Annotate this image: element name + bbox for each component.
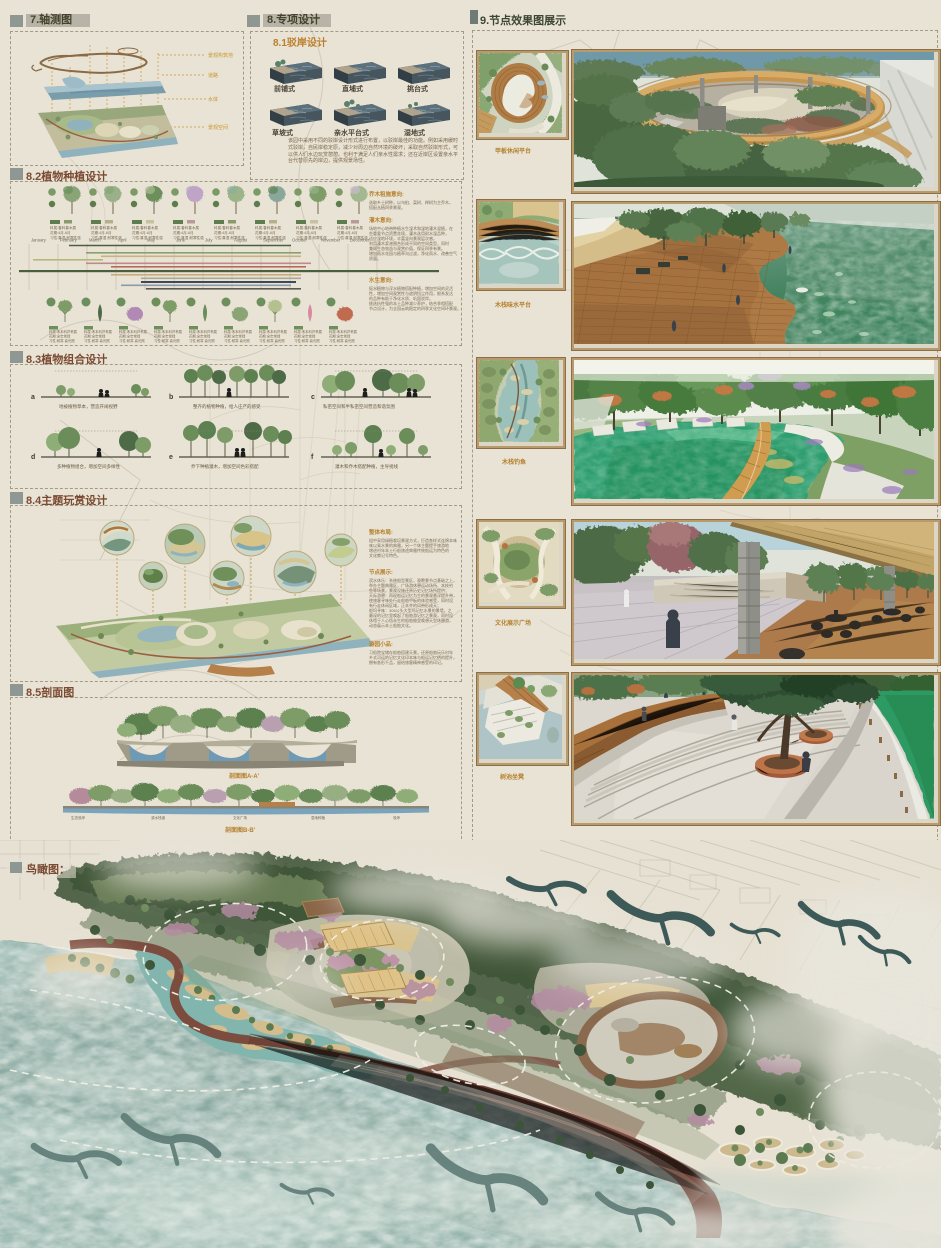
svg-text:花期:4月-6月: 花期:4月-6月 xyxy=(50,230,71,235)
svg-text:August: August xyxy=(234,238,248,243)
svg-text:科属:禾本科芦苇属: 科属:禾本科芦苇属 xyxy=(49,329,78,334)
svg-text:January: January xyxy=(31,238,47,243)
svg-text:习性:耐寒 喜光照: 习性:耐寒 喜光照 xyxy=(224,338,250,343)
svg-text:c: c xyxy=(311,394,315,401)
svg-text:滨水栈道: 滨水栈道 xyxy=(151,815,165,820)
svg-text:花期:4月-6月: 花期:4月-6月 xyxy=(255,230,276,235)
svg-text:文化广场: 文化广场 xyxy=(233,815,247,820)
svg-text:地被植物草本，营造开阔视野: 地被植物草本，营造开阔视野 xyxy=(59,403,118,410)
svg-text:生态驳岸: 生态驳岸 xyxy=(71,815,85,820)
svg-text:科属:禾本科芦苇属: 科属:禾本科芦苇属 xyxy=(294,329,323,334)
svg-text:科属:禾本科芦苇属: 科属:禾本科芦苇属 xyxy=(154,329,183,334)
svg-text:February: February xyxy=(60,238,78,243)
svg-text:草坡式: 草坡式 xyxy=(272,128,293,137)
svg-text:灌木意向:: 灌木意向: xyxy=(369,216,393,224)
svg-text:乔下种植灌木，增加空间色彩搭配: 乔下种植灌木，增加空间色彩搭配 xyxy=(191,463,259,470)
svg-text:景观空间: 景观空间 xyxy=(208,124,228,131)
svg-text:道路: 道路 xyxy=(208,72,218,79)
svg-text:June: June xyxy=(176,238,186,243)
svg-text:e: e xyxy=(169,454,173,461)
svg-text:科属:春科春木属: 科属:春科春木属 xyxy=(173,225,200,230)
svg-text:乔木租施意向:: 乔木租施意向: xyxy=(368,190,404,198)
svg-text:习性:耐寒 喜光照: 习性:耐寒 喜光照 xyxy=(119,338,145,343)
svg-text:搭配丛植四季景观。: 搭配丛植四季景观。 xyxy=(369,204,405,210)
svg-text:习性:耐寒 喜光照: 习性:耐寒 喜光照 xyxy=(294,338,320,343)
svg-text:October: October xyxy=(292,238,308,243)
svg-text:亲水平台式: 亲水平台式 xyxy=(334,128,369,137)
svg-text:驳岸: 驳岸 xyxy=(393,815,401,820)
svg-text:科属:春科春木属: 科属:春科春木属 xyxy=(296,225,323,230)
svg-text:科属:禾本科芦苇属: 科属:禾本科芦苇属 xyxy=(189,329,218,334)
svg-text:April: April xyxy=(118,238,126,243)
svg-text:习性:耐寒 喜光照: 习性:耐寒 喜光照 xyxy=(189,338,215,343)
svg-text:私密空间和半私密空间营造和谐氛围: 私密空间和半私密空间营造和谐氛围 xyxy=(323,403,395,410)
svg-text:花期:全年常绿: 花期:全年常绿 xyxy=(84,334,106,339)
svg-text:f: f xyxy=(311,454,314,461)
svg-text:a: a xyxy=(31,394,35,401)
svg-text:习性:耐寒 喜光照: 习性:耐寒 喜光照 xyxy=(329,338,355,343)
svg-text:动态展示本土船舶文化。: 动态展示本土船舶文化。 xyxy=(369,622,413,628)
svg-text:科属:春科春木属: 科属:春科春木属 xyxy=(214,225,241,230)
svg-text:d: d xyxy=(31,454,35,461)
svg-text:景观构筑地: 景观构筑地 xyxy=(208,52,233,59)
svg-text:September: September xyxy=(263,238,284,243)
svg-text:拥有各形千品，留给旅客精神感受的印记。: 拥有各形千品，留给旅客精神感受的印记。 xyxy=(369,659,445,665)
svg-text:科属:春科春木属: 科属:春科春木属 xyxy=(50,225,77,230)
svg-text:湿地种植: 湿地种植 xyxy=(311,815,325,820)
svg-text:习性:耐寒 喜光照: 习性:耐寒 喜光照 xyxy=(259,338,285,343)
svg-text:March: March xyxy=(89,238,101,243)
svg-text:科属:禾本科芦苇属: 科属:禾本科芦苇属 xyxy=(259,329,288,334)
svg-text:花期:全年常绿: 花期:全年常绿 xyxy=(49,334,71,339)
svg-text:整齐的植物种植，给人庄严的感受: 整齐的植物种植，给人庄严的感受 xyxy=(193,403,261,410)
svg-text:b: b xyxy=(169,394,173,401)
svg-text:科属:禾本科芦苇属: 科属:禾本科芦苇属 xyxy=(119,329,148,334)
svg-text:科属:春科春木属: 科属:春科春木属 xyxy=(255,225,282,230)
svg-text:习性:耐寒 喜光照: 习性:耐寒 喜光照 xyxy=(154,338,180,343)
svg-text:挑台式: 挑台式 xyxy=(407,84,428,93)
svg-text:花期:全年常绿: 花期:全年常绿 xyxy=(329,334,351,339)
svg-text:July: July xyxy=(205,238,213,243)
svg-text:花期:4月-6月: 花期:4月-6月 xyxy=(91,230,112,235)
svg-text:科属:禾本科芦苇属: 科属:禾本科芦苇属 xyxy=(84,329,113,334)
svg-text:剖面图B-B': 剖面图B-B' xyxy=(225,826,256,834)
svg-text:节点设计，为全园云筑稳定的四季文化空间环景观。: 节点设计，为全园云筑稳定的四季文化空间环景观。 xyxy=(369,305,459,311)
svg-text:水体: 水体 xyxy=(208,96,218,103)
svg-text:整体布局:: 整体布局: xyxy=(369,528,393,536)
svg-text:December: December xyxy=(350,238,370,243)
svg-text:花期:全年常绿: 花期:全年常绿 xyxy=(224,334,246,339)
svg-text:花期:全年常绿: 花期:全年常绿 xyxy=(119,334,141,339)
svg-text:May: May xyxy=(147,238,156,243)
svg-text:科属:春科春木属: 科属:春科春木属 xyxy=(91,225,118,230)
svg-text:November: November xyxy=(321,238,341,243)
svg-text:文化教记号特色。: 文化教记号特色。 xyxy=(369,552,401,558)
svg-text:质量。: 质量。 xyxy=(369,255,381,261)
svg-text:前铺式: 前铺式 xyxy=(274,84,295,93)
svg-text:花期:4月-6月: 花期:4月-6月 xyxy=(132,230,153,235)
svg-text:花期:全年常绿: 花期:全年常绿 xyxy=(189,334,211,339)
svg-text:花期:全年常绿: 花期:全年常绿 xyxy=(259,334,281,339)
svg-text:科属:春科春木属: 科属:春科春木属 xyxy=(132,225,159,230)
svg-text:增加雨水花园与植草沟过滤，净化雨水、改善空气: 增加雨水花园与植草沟过滤，净化雨水、改善空气 xyxy=(369,250,457,256)
svg-text:科属:禾本科芦苇属: 科属:禾本科芦苇属 xyxy=(224,329,253,334)
svg-text:游园小品:: 游园小品: xyxy=(369,640,393,648)
svg-text:科属:禾本科芦苇属: 科属:禾本科芦苇属 xyxy=(329,329,358,334)
svg-text:科属:春科春木属: 科属:春科春木属 xyxy=(337,225,364,230)
svg-text:花期:4月-6月: 花期:4月-6月 xyxy=(214,230,235,235)
svg-text:剖面图A-A': 剖面图A-A' xyxy=(229,772,260,780)
svg-text:习性:耐寒 喜光照: 习性:耐寒 喜光照 xyxy=(84,338,110,343)
svg-text:花期:4月-6月: 花期:4月-6月 xyxy=(337,230,358,235)
svg-text:花期:4月-6月: 花期:4月-6月 xyxy=(296,230,317,235)
svg-text:灌木和乔木搭配种植，主导视线: 灌木和乔木搭配种植，主导视线 xyxy=(335,463,398,470)
svg-text:多种植物组合，增加空间多样性: 多种植物组合，增加空间多样性 xyxy=(57,463,120,470)
svg-text:花期:全年常绿: 花期:全年常绿 xyxy=(154,334,176,339)
svg-text:习性:耐寒 喜光照: 习性:耐寒 喜光照 xyxy=(49,338,75,343)
svg-text:花期:4月-6月: 花期:4月-6月 xyxy=(173,230,194,235)
svg-text:花期:全年常绿: 花期:全年常绿 xyxy=(294,334,316,339)
svg-text:湿地式: 湿地式 xyxy=(404,128,425,137)
svg-text:直埔式: 直埔式 xyxy=(342,84,363,93)
svg-text:节点展示:: 节点展示: xyxy=(369,568,393,576)
svg-text:水生意向:: 水生意向: xyxy=(369,276,393,284)
